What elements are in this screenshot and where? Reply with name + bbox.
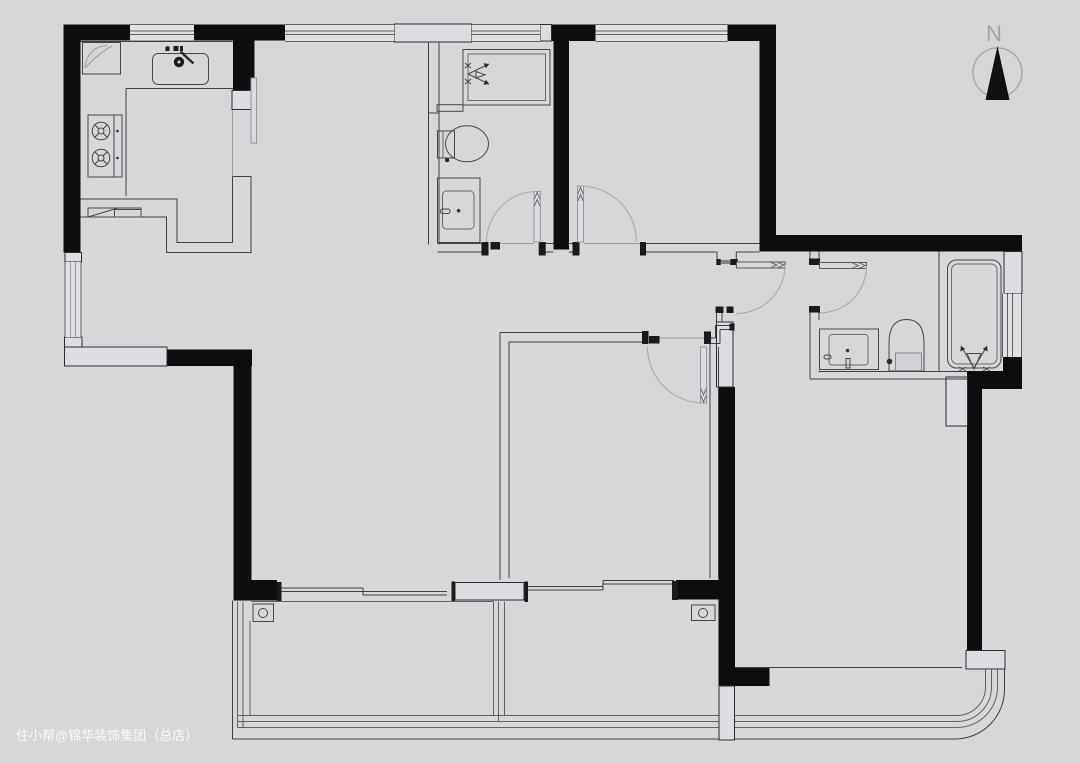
svg-text:住小帮@锦华装饰集团（总店）: 住小帮@锦华装饰集团（总店）: [16, 728, 198, 743]
svg-text:N: N: [986, 21, 1002, 46]
